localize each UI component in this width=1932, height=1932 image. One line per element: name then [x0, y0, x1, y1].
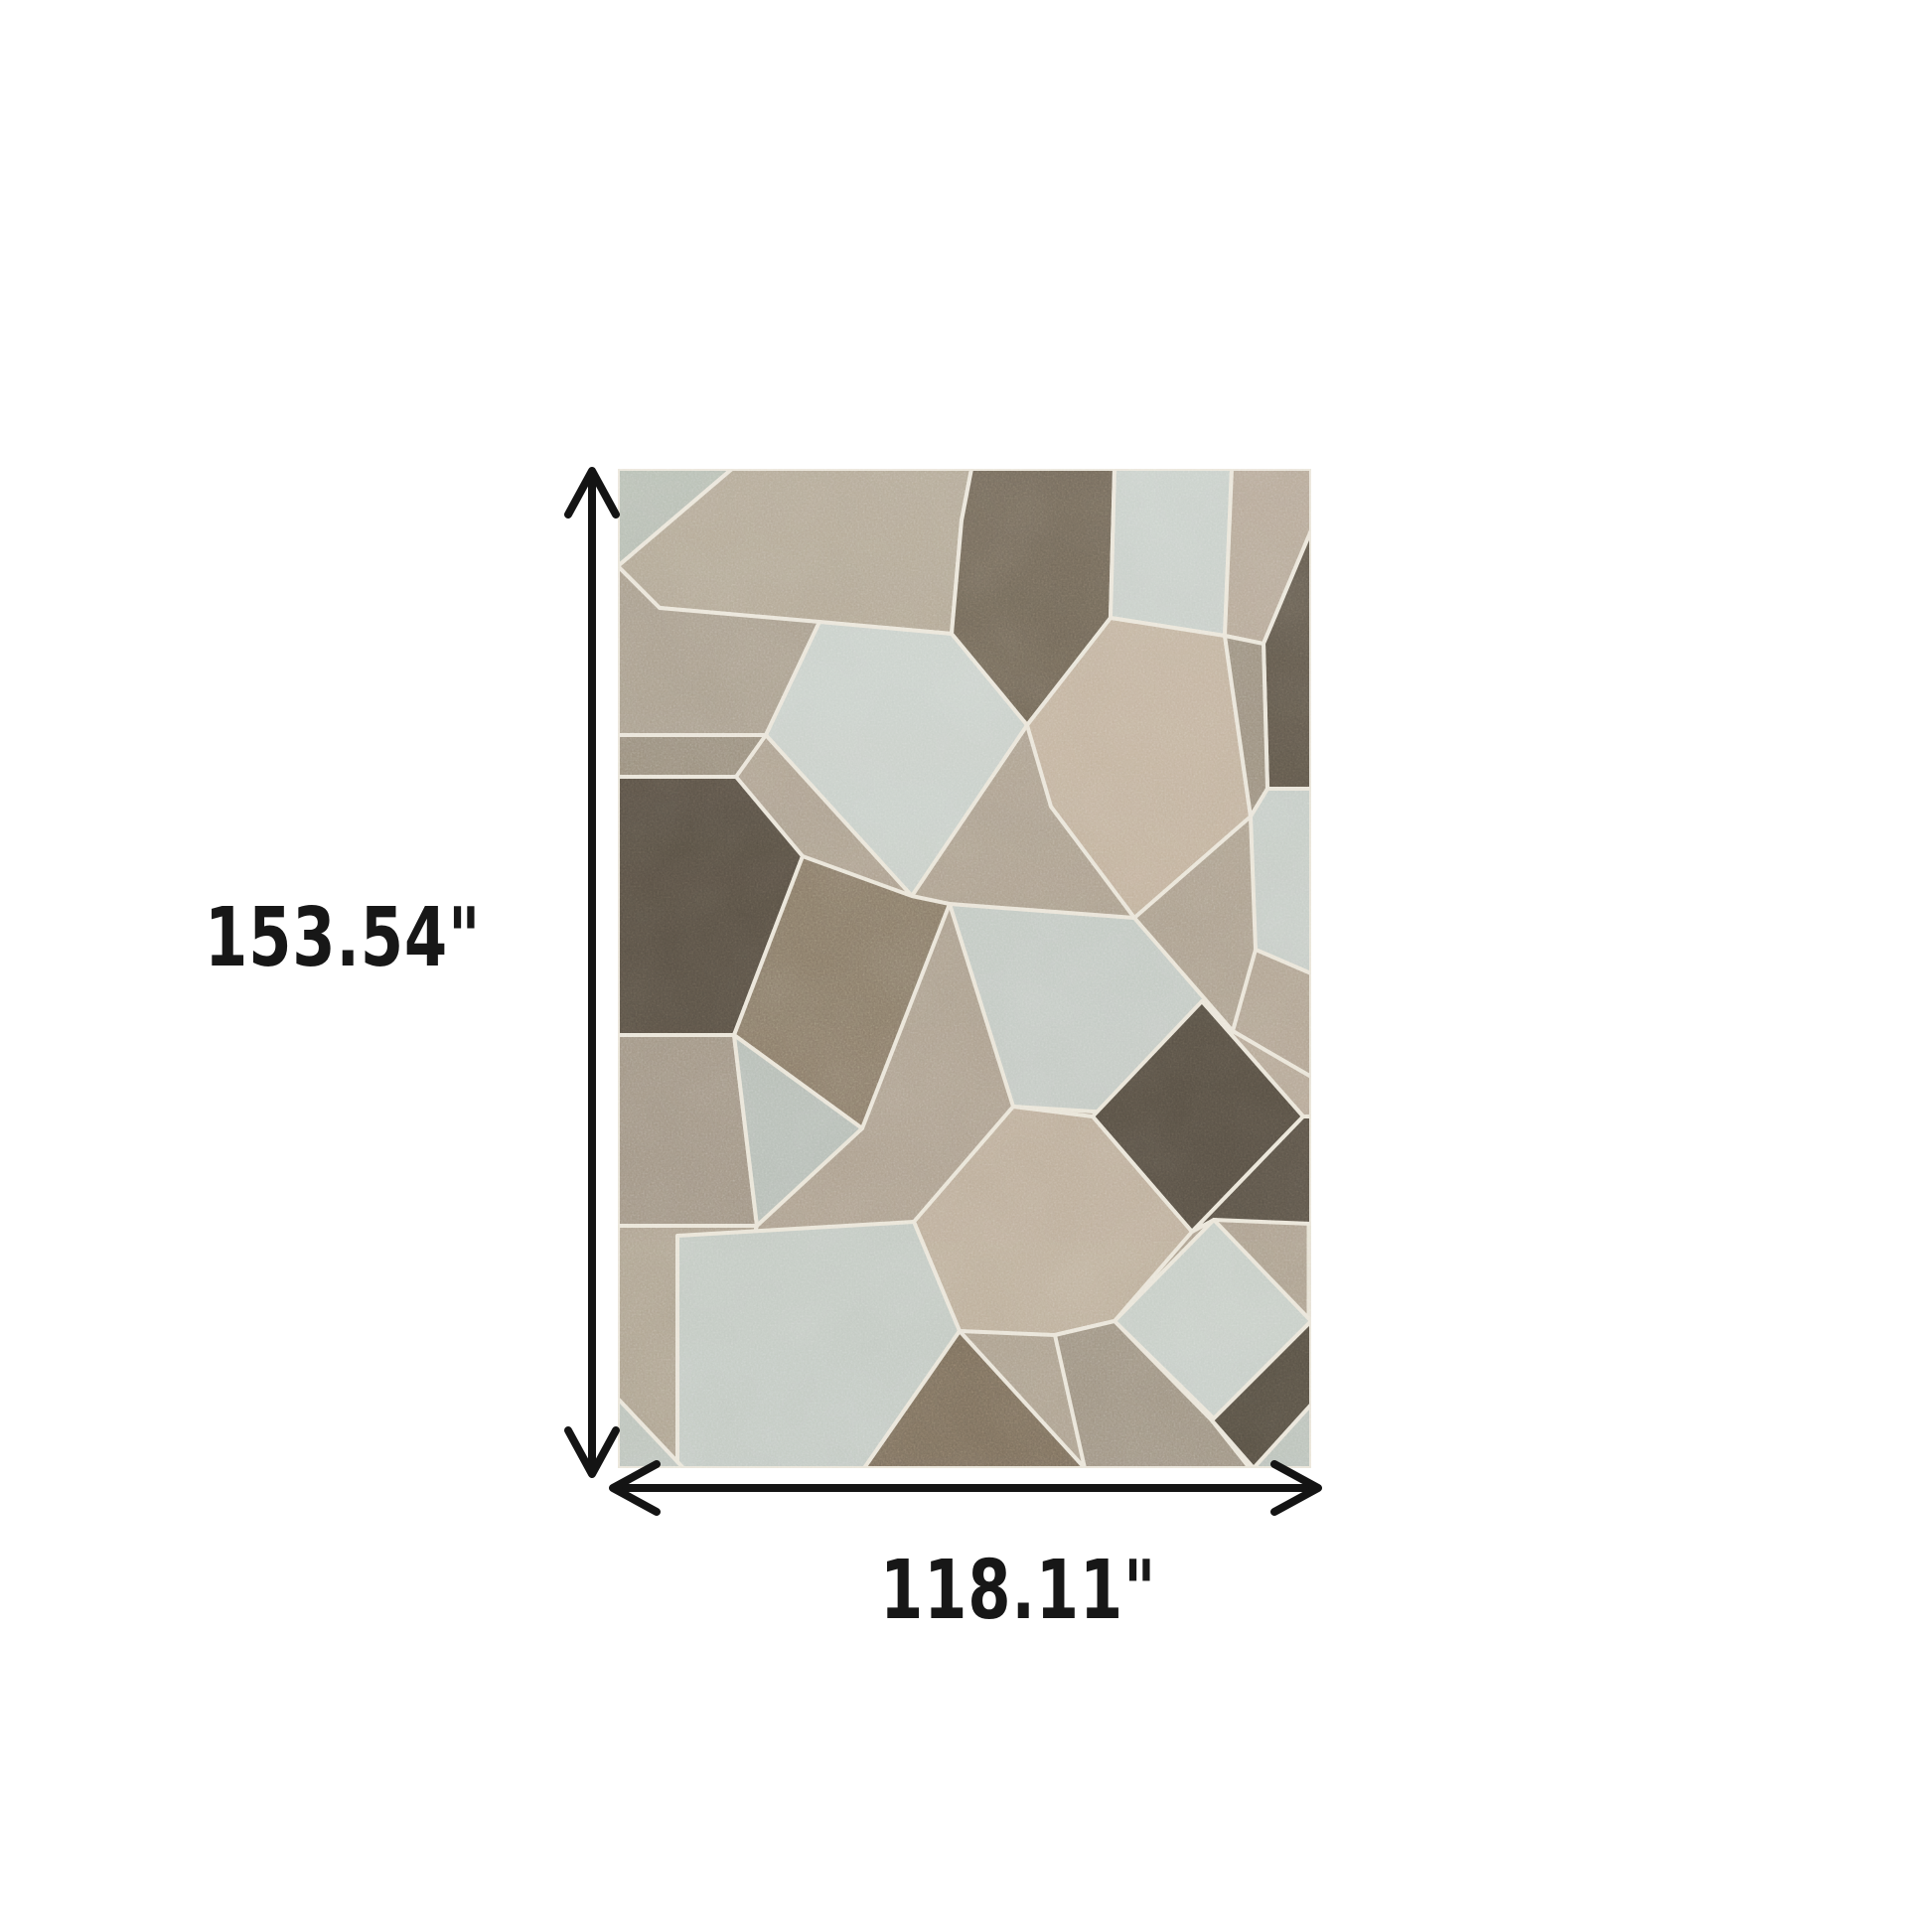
rug-pattern-svg — [618, 469, 1311, 1468]
height-arrow — [568, 471, 616, 1474]
rug-image — [618, 469, 1311, 1468]
height-dimension-label: 153.54" — [205, 898, 481, 979]
width-arrow — [613, 1464, 1318, 1512]
rug-shading — [618, 469, 1311, 1468]
product-dimension-figure: 153.54" 118.11" — [0, 0, 1932, 1932]
width-dimension-label: 118.11" — [880, 1551, 1156, 1632]
